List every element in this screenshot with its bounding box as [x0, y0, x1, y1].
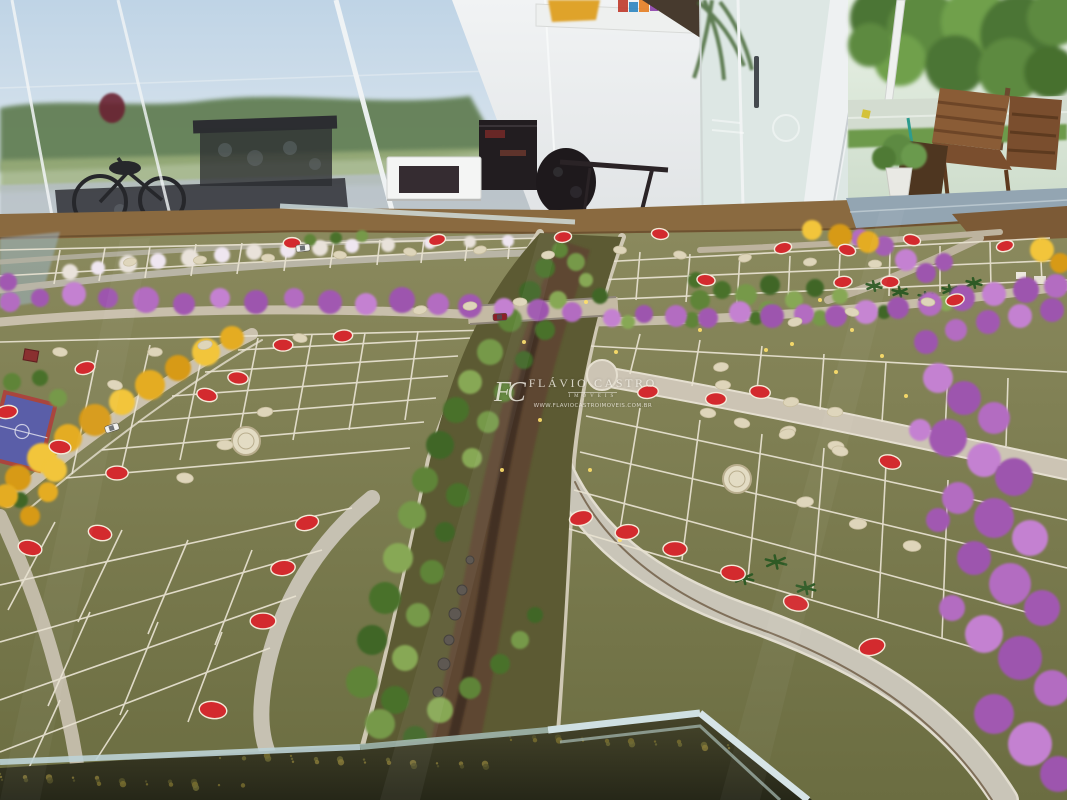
purple-tree: [760, 304, 784, 328]
moss-speck: [145, 780, 147, 782]
moss-speck: [533, 738, 537, 742]
moss-speck: [655, 743, 657, 745]
moss-speck: [265, 755, 271, 761]
moss-speck: [678, 743, 682, 747]
green-tree: [832, 288, 848, 304]
purple-tree: [989, 563, 1031, 605]
sold-lot-marker: [250, 613, 276, 629]
palm-crown: [972, 281, 977, 286]
yellow-tree: [135, 370, 165, 400]
green-tree: [579, 273, 593, 287]
block-medallion: [723, 465, 751, 493]
moss-speck: [241, 783, 245, 787]
block-medallion: [232, 427, 260, 455]
moss-speck: [146, 783, 148, 785]
purple-tree: [942, 482, 974, 514]
helmet-silhouette: [99, 93, 125, 123]
moss-speck: [437, 765, 439, 767]
door-handle: [754, 56, 759, 108]
purple-tree: [1040, 298, 1064, 322]
purple-tree: [974, 694, 1014, 734]
yellow-tree: [38, 482, 58, 502]
purple-tree: [1008, 304, 1032, 328]
sold-lot-marker: [273, 339, 293, 351]
green-tree: [527, 607, 543, 623]
purple-tree: [729, 301, 751, 323]
yellow-tree: [802, 220, 822, 240]
purple-tree: [173, 293, 195, 315]
white-tree: [62, 264, 78, 280]
moss-speck: [436, 762, 438, 764]
palm-crown: [774, 560, 779, 565]
green-tree: [592, 288, 608, 304]
moss-speck: [169, 782, 173, 786]
green-tree: [567, 253, 585, 271]
purple-tree: [825, 305, 847, 327]
purple-tree: [210, 288, 230, 308]
green-tree: [383, 543, 413, 573]
green-tree: [511, 631, 529, 649]
moss-speck: [315, 760, 319, 764]
green-tree: [392, 645, 418, 671]
available-lot-marker: [217, 440, 233, 450]
light-dot: [790, 342, 794, 346]
sold-lot-marker: [663, 542, 687, 557]
purple-tree: [603, 309, 621, 327]
moss-speck: [702, 745, 708, 751]
moss-speck: [72, 777, 74, 779]
purple-tree: [965, 615, 1003, 653]
purple-tree: [698, 308, 718, 328]
green-tree: [621, 315, 635, 329]
moss-speck: [218, 784, 220, 786]
light-dot: [588, 468, 592, 472]
purple-tree: [935, 253, 953, 271]
scale-model: [0, 188, 1067, 800]
green-tree: [459, 677, 481, 699]
moss-speck: [654, 740, 656, 742]
moss-speck: [363, 758, 365, 760]
model-car: [296, 244, 311, 252]
green-tree: [420, 560, 444, 584]
purple-tree: [923, 363, 953, 393]
green-tree: [406, 603, 430, 627]
white-tree: [246, 244, 262, 260]
purple-tree: [909, 419, 931, 441]
purple-tree: [976, 310, 1000, 334]
purple-tree: [1008, 722, 1052, 766]
sold-lot-marker: [106, 466, 128, 480]
moss-speck: [290, 755, 292, 757]
moss-speck: [338, 759, 344, 765]
purple-tree: [982, 282, 1006, 306]
purple-tree: [284, 288, 304, 308]
green-tree: [435, 522, 455, 542]
purple-tree: [318, 290, 342, 314]
purple-tree: [389, 287, 415, 313]
light-dot: [818, 298, 822, 302]
yellow-tree: [1030, 238, 1054, 262]
green-tree: [535, 320, 555, 340]
available-lot-marker: [148, 348, 163, 357]
light-dot: [904, 394, 908, 398]
yellow-tree: [220, 326, 244, 350]
green-tree: [458, 370, 482, 394]
white-tree: [345, 239, 359, 253]
light-dot: [764, 348, 768, 352]
purple-tree: [1044, 274, 1067, 298]
purple-tree: [947, 381, 981, 415]
purple-tree: [926, 508, 950, 532]
purple-tree: [929, 419, 967, 457]
moss-speck: [510, 739, 512, 741]
purple-tree: [974, 498, 1014, 538]
available-lot-marker: [849, 519, 866, 529]
dark-console: [479, 120, 537, 190]
available-lot-marker: [261, 254, 274, 262]
green-tree: [3, 373, 21, 391]
moss-speck: [47, 777, 53, 783]
purple-tree: [916, 263, 936, 283]
white-tree: [214, 247, 230, 263]
purple-tree: [244, 290, 268, 314]
light-dot: [880, 354, 884, 358]
yellow-tree: [20, 506, 40, 526]
green-tree: [412, 467, 438, 493]
moss-speck: [292, 761, 294, 763]
purple-tree: [355, 293, 377, 315]
purple-tree: [887, 297, 909, 319]
purple-tree: [998, 636, 1042, 680]
green-tree: [760, 275, 780, 295]
purple-tree: [31, 289, 49, 307]
cul-de-sac-bulb: [587, 360, 617, 390]
moss-speck: [728, 747, 730, 749]
white-cabinet: [387, 157, 481, 200]
purple-tree: [995, 458, 1033, 496]
purple-tree: [914, 330, 938, 354]
green-tree: [365, 709, 395, 739]
moss-speck: [120, 781, 126, 787]
green-tree: [381, 686, 409, 714]
light-dot: [584, 300, 588, 304]
moss-speck: [193, 785, 199, 791]
green-tree: [806, 279, 824, 297]
green-tree: [477, 339, 503, 365]
showroom-photo: FC FLÁVIO CASTRO IMÓVEIS WWW.FLAVIOCASTR…: [0, 0, 1067, 800]
photo-scene: [0, 0, 1067, 800]
model-car: [493, 313, 507, 321]
green-tree: [490, 654, 510, 674]
yellow-cloth: [548, 0, 600, 22]
sold-lot-marker: [706, 393, 727, 406]
green-tree: [713, 281, 731, 299]
available-lot-marker: [715, 380, 730, 389]
light-dot: [698, 328, 702, 332]
green-tree: [426, 431, 454, 459]
moss-speck: [606, 742, 610, 746]
purple-tree: [1024, 590, 1060, 626]
purple-tree: [562, 302, 582, 322]
moss-speck: [629, 741, 635, 747]
green-tree: [369, 582, 401, 614]
purple-tree: [0, 292, 20, 312]
green-tree: [690, 290, 710, 310]
light-dot: [538, 418, 542, 422]
purple-tree: [978, 402, 1010, 434]
purple-tree: [1013, 277, 1039, 303]
white-tree: [381, 238, 395, 252]
palm-crown: [898, 290, 903, 295]
white-tree: [91, 261, 105, 275]
green-tree: [398, 501, 426, 529]
playground-structure: [23, 349, 39, 362]
moss-speck: [291, 758, 293, 760]
purple-tree: [939, 595, 965, 621]
moss-speck: [1, 779, 3, 781]
moss-speck: [73, 779, 75, 781]
street-sign: [861, 109, 870, 118]
moss-speck: [219, 757, 221, 759]
moss-speck: [242, 756, 246, 760]
green-tree: [356, 230, 368, 242]
white-tree: [150, 253, 166, 269]
moss-speck: [460, 764, 464, 768]
purple-tree: [945, 319, 967, 341]
moss-speck: [727, 744, 729, 746]
green-tree: [32, 370, 48, 386]
green-tree: [346, 666, 378, 698]
yellow-tree: [165, 355, 191, 381]
purple-tree: [665, 305, 687, 327]
purple-tree: [895, 249, 917, 271]
white-tree: [464, 236, 476, 248]
purple-tree: [62, 282, 86, 306]
purple-tree: [1012, 520, 1048, 556]
purple-tree: [957, 541, 991, 575]
yellow-tree: [43, 458, 67, 482]
white-tree: [502, 235, 514, 247]
green-tree: [443, 397, 469, 423]
green-tree: [49, 389, 67, 407]
purple-tree: [427, 293, 449, 315]
green-tree: [330, 232, 342, 244]
green-tree: [357, 625, 387, 655]
moss-speck: [364, 761, 366, 763]
moss-speck: [97, 782, 101, 786]
light-dot: [614, 350, 618, 354]
purple-tree: [635, 305, 653, 323]
moss-speck: [483, 764, 489, 770]
